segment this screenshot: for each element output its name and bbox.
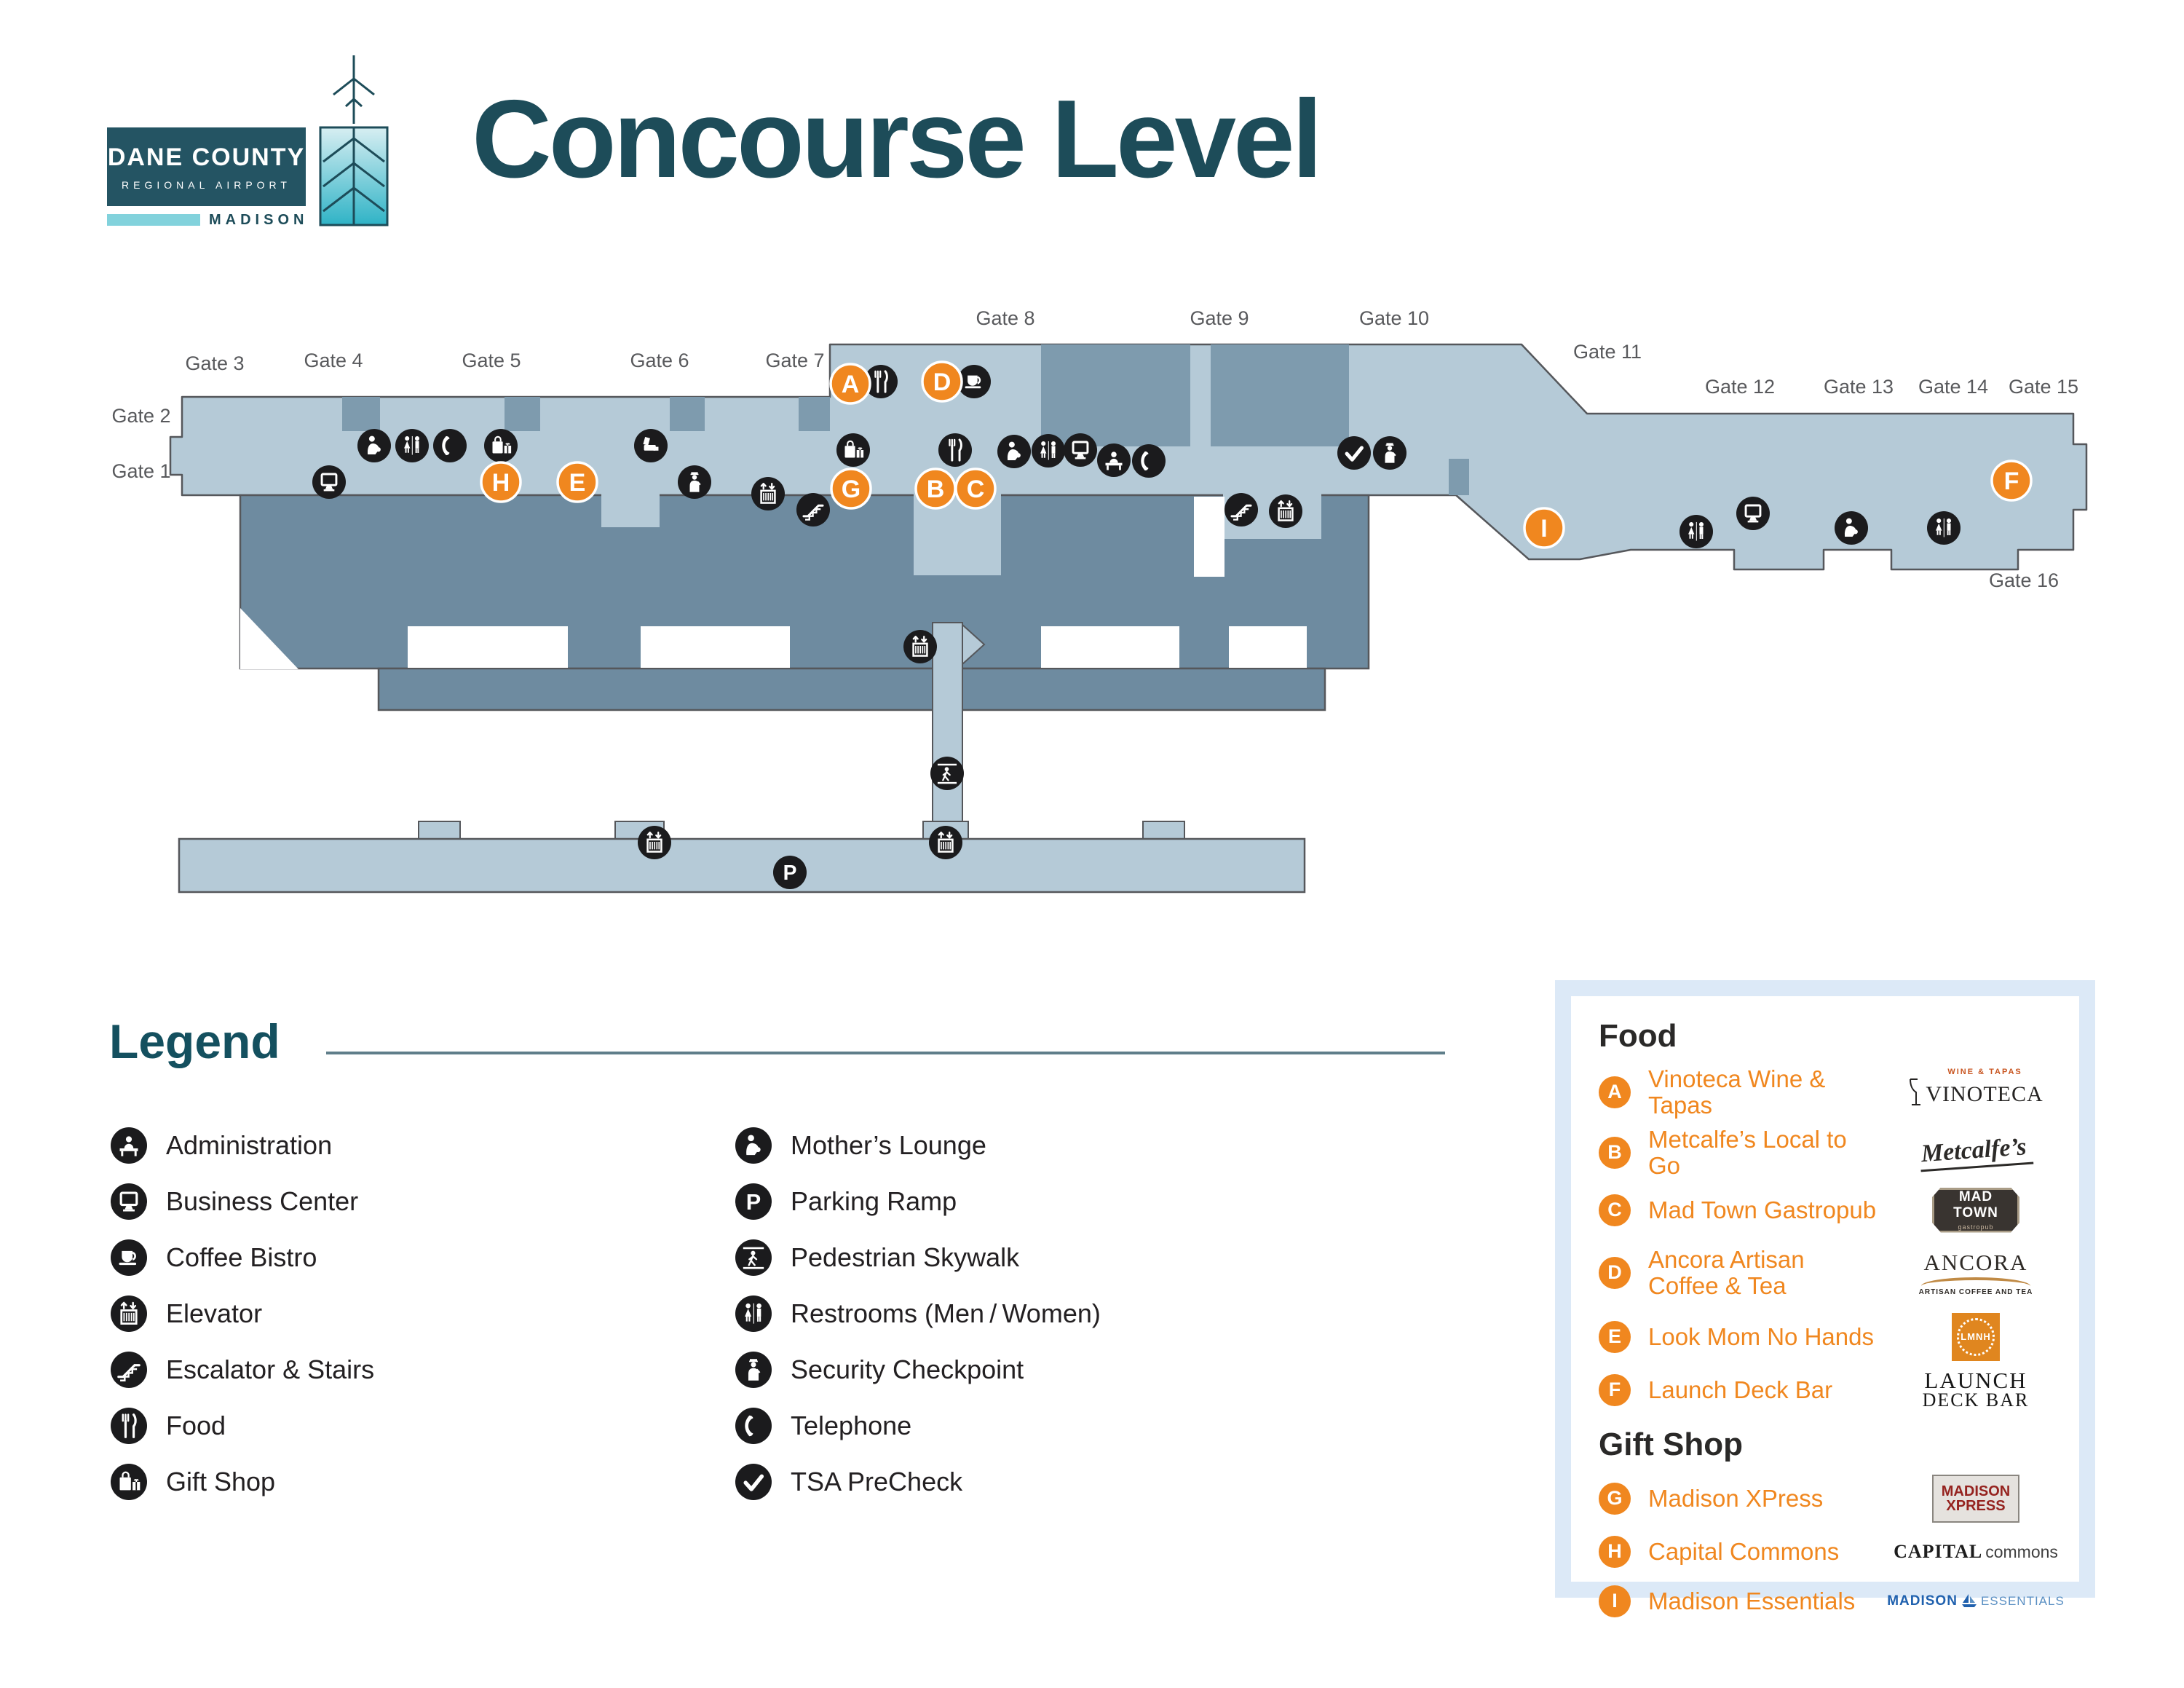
sailboat-icon (1961, 1593, 1978, 1609)
business-center-icon (111, 1183, 147, 1220)
security-checkpoint-icon (1373, 436, 1406, 470)
gift-shop-icon (484, 429, 518, 462)
gate-label-gate-8: Gate 8 (976, 307, 1034, 329)
lmnh-logo: LMNH (1952, 1313, 2000, 1361)
directory-item-H: HCapital CommonsCAPITALcommons (1599, 1531, 2054, 1572)
security-checkpoint-icon (678, 465, 711, 499)
parking-ramp-icon (773, 856, 807, 889)
legend-item-label: Security Checkpoint (791, 1354, 1024, 1385)
directory-item-label: Metcalfe’s Local to Go (1648, 1127, 1881, 1178)
gate-label-gate-11: Gate 11 (1573, 341, 1642, 363)
svg-text:I: I (1540, 515, 1547, 543)
gate-label-gate-6: Gate 6 (630, 350, 689, 371)
madison-essentials-logo: MADISONESSENTIALS (1887, 1593, 2065, 1609)
svg-text:G: G (842, 476, 860, 503)
directory-item-label: Look Mom No Hands (1648, 1324, 1881, 1350)
mothers-lounge-icon (1835, 511, 1868, 545)
tsa-precheck-icon (735, 1464, 772, 1500)
svg-text:E: E (569, 469, 586, 497)
letter-badge-I: I (1599, 1585, 1631, 1617)
directory-panel: Food AVinoteca Wine & TapasWINE & TAPASV… (1555, 980, 2095, 1598)
launch-deck-bar-logo: LAUNCHDECK BAR (1923, 1370, 2030, 1408)
gate-label-gate-5: Gate 5 (462, 350, 521, 371)
legend-item-label: TSA PreCheck (791, 1467, 962, 1497)
directory-item-D: DAncora ArtisanCoffee & TeaANCORAARTISAN… (1599, 1242, 2054, 1304)
metcalfes-logo: Metcalfe’s (1918, 1133, 2033, 1172)
elevator-icon (638, 826, 671, 859)
map-letter-G: G (831, 469, 871, 508)
legend-rule (326, 1052, 1445, 1054)
telephone-icon (1132, 444, 1166, 478)
directory-item-label: Launch Deck Bar (1648, 1377, 1881, 1403)
gate-label-gate-7: Gate 7 (765, 350, 824, 371)
map-parking-ramp (179, 821, 1305, 892)
svg-text:A: A (842, 371, 860, 398)
gate-label-gate-3: Gate 3 (185, 352, 244, 374)
legend-item-restrooms: Restrooms (Men / Women) (735, 1295, 1101, 1332)
restrooms-icon (735, 1295, 772, 1332)
directory-item-F: FLaunch Deck BarLAUNCHDECK BAR (1599, 1370, 2054, 1411)
svg-text:H: H (492, 469, 510, 497)
mothers-lounge-icon (735, 1127, 772, 1164)
food-heading: Food (1599, 1018, 2054, 1054)
legend-title: Legend (109, 1014, 280, 1069)
pedestrian-skywalk-icon (735, 1239, 772, 1276)
legend-item-label: Pedestrian Skywalk (791, 1242, 1019, 1273)
concourse-level-page: DANE COUNTY REGIONAL AIRPORT MADISON Con… (0, 0, 2184, 1688)
svg-text:F: F (2004, 468, 2019, 495)
gate-label-gate-9: Gate 9 (1190, 307, 1249, 329)
map-letter-F: F (1992, 461, 2031, 500)
capital-commons-logo: CAPITALcommons (1894, 1541, 2058, 1563)
seating-area-icon (634, 429, 668, 462)
business-center-icon (1736, 497, 1770, 530)
legend-item-pedestrian-skywalk: Pedestrian Skywalk (735, 1239, 1101, 1276)
mad-town-logo: MAD TOWNgastropub (1932, 1188, 2019, 1233)
pedestrian-skywalk-icon (930, 757, 964, 790)
legend-item-label: Elevator (166, 1298, 262, 1329)
directory-item-I: IMadison EssentialsMADISONESSENTIALS (1599, 1581, 2054, 1622)
ancora-logo: ANCORAARTISAN COFFEE AND TEA (1919, 1250, 2033, 1296)
legend-item-food: Food (111, 1408, 374, 1444)
letter-badge-D: D (1599, 1257, 1631, 1289)
map-letter-C: C (956, 469, 995, 508)
legend-item-label: Business Center (166, 1186, 358, 1217)
escalator-icon (1224, 493, 1258, 526)
elevator-icon (903, 630, 937, 663)
legend-column-2: Mother’s LoungeParking RampPedestrian Sk… (735, 1127, 1101, 1500)
elevator-icon (111, 1295, 147, 1332)
legend-item-label: Telephone (791, 1411, 911, 1441)
administration-icon (111, 1127, 147, 1164)
legend-item-mothers-lounge: Mother’s Lounge (735, 1127, 1101, 1164)
legend-item-label: Escalator & Stairs (166, 1354, 374, 1385)
directory-item-C: CMad Town GastropubMAD TOWNgastropub (1599, 1188, 2054, 1233)
elevator-icon (1269, 494, 1302, 528)
legend-item-label: Restrooms (Men / Women) (791, 1298, 1101, 1329)
gift-shop-heading: Gift Shop (1599, 1427, 2054, 1463)
gift-shop-list: GMadison XPressMADISONXPRESSHCapital Com… (1599, 1475, 2054, 1622)
directory-item-E: ELook Mom No HandsLMNH (1599, 1313, 2054, 1361)
legend-item-parking-ramp: Parking Ramp (735, 1183, 1101, 1220)
telephone-icon (433, 429, 467, 462)
legend-item-administration: Administration (111, 1127, 374, 1164)
food-icon (111, 1408, 147, 1444)
map-letter-A: A (831, 364, 870, 403)
directory-item-G: GMadison XPressMADISONXPRESS (1599, 1475, 2054, 1523)
letter-badge-B: B (1599, 1137, 1631, 1169)
legend-item-label: Gift Shop (166, 1467, 275, 1497)
legend-item-escalator: Escalator & Stairs (111, 1352, 374, 1388)
directory-item-label: Ancora ArtisanCoffee & Tea (1648, 1247, 1881, 1298)
vinoteca-logo: WINE & TAPASVINOTECA (1908, 1078, 2043, 1107)
gate-label-gate-16: Gate 16 (1989, 569, 2059, 591)
coffee-bistro-icon (111, 1239, 147, 1276)
administration-icon (1097, 443, 1131, 477)
gate-label-gate-10: Gate 10 (1359, 307, 1429, 329)
elevator-icon (929, 826, 962, 859)
gift-shop-icon (836, 433, 870, 467)
map-letter-D: D (922, 362, 962, 401)
food-icon (938, 433, 972, 467)
letter-badge-C: C (1599, 1194, 1631, 1226)
gate-label-gate-13: Gate 13 (1824, 376, 1894, 398)
map-letter-E: E (558, 462, 597, 502)
directory-item-label: Capital Commons (1648, 1539, 1881, 1565)
legend-item-label: Parking Ramp (791, 1186, 957, 1217)
directory-item-label: Mad Town Gastropub (1648, 1197, 1881, 1223)
gate-label-gate-12: Gate 12 (1705, 376, 1775, 398)
restrooms-icon (395, 429, 429, 462)
legend-item-tsa-precheck: TSA PreCheck (735, 1464, 1101, 1500)
mothers-lounge-icon (997, 435, 1031, 468)
gate-label-gate-1: Gate 1 (111, 460, 170, 482)
legend-item-label: Food (166, 1411, 226, 1441)
legend-item-gift-shop: Gift Shop (111, 1464, 374, 1500)
legend-item-security-checkpoint: Security Checkpoint (735, 1352, 1101, 1388)
directory-item-label: Vinoteca Wine & Tapas (1648, 1066, 1881, 1118)
gate-label-gate-2: Gate 2 (111, 405, 170, 427)
directory-item-A: AVinoteca Wine & TapasWINE & TAPASVINOTE… (1599, 1066, 2054, 1118)
tsa-precheck-icon (1337, 436, 1371, 470)
map-letter-I: I (1524, 508, 1564, 548)
letter-badge-A: A (1599, 1076, 1631, 1108)
business-center-icon (1064, 433, 1097, 467)
letter-badge-H: H (1599, 1536, 1631, 1568)
food-list: AVinoteca Wine & TapasWINE & TAPASVINOTE… (1599, 1066, 2054, 1411)
parking-ramp-icon (735, 1183, 772, 1220)
legend-item-elevator: Elevator (111, 1295, 374, 1332)
security-checkpoint-icon (735, 1352, 772, 1388)
legend-item-business-center: Business Center (111, 1183, 374, 1220)
legend-item-label: Administration (166, 1130, 332, 1161)
legend-item-label: Coffee Bistro (166, 1242, 317, 1273)
gift-shop-icon (111, 1464, 147, 1500)
directory-item-B: BMetcalfe’s Local to GoMetcalfe’s (1599, 1127, 2054, 1178)
escalator-icon (796, 493, 830, 526)
directory-item-label: Madison Essentials (1648, 1588, 1881, 1614)
letter-badge-E: E (1599, 1321, 1631, 1353)
svg-text:B: B (927, 476, 945, 503)
escalator-icon (111, 1352, 147, 1388)
restrooms-icon (1927, 511, 1961, 545)
gate-label-gate-4: Gate 4 (304, 350, 363, 371)
letter-badge-F: F (1599, 1374, 1631, 1406)
business-center-icon (312, 465, 346, 499)
telephone-icon (735, 1408, 772, 1444)
restrooms-icon (1032, 434, 1065, 468)
gate-label-gate-14: Gate 14 (1918, 376, 1988, 398)
legend-column-1: AdministrationBusiness CenterCoffee Bist… (111, 1127, 374, 1500)
mothers-lounge-icon (357, 429, 391, 462)
legend-item-coffee-bistro: Coffee Bistro (111, 1239, 374, 1276)
map-letter-H: H (481, 462, 521, 502)
svg-text:C: C (967, 476, 985, 503)
letter-badge-G: G (1599, 1483, 1631, 1515)
restrooms-icon (1679, 515, 1713, 548)
map-letter-B: B (916, 469, 955, 508)
gate-label-gate-15: Gate 15 (2009, 376, 2078, 398)
directory-item-label: Madison XPress (1648, 1486, 1881, 1512)
elevator-icon (751, 477, 785, 510)
legend-item-label: Mother’s Lounge (791, 1130, 986, 1161)
legend-item-telephone: Telephone (735, 1408, 1101, 1444)
svg-text:D: D (933, 368, 951, 396)
madison-xpress-logo: MADISONXPRESS (1932, 1475, 2019, 1523)
map-terminal-lower-band (379, 669, 1325, 710)
